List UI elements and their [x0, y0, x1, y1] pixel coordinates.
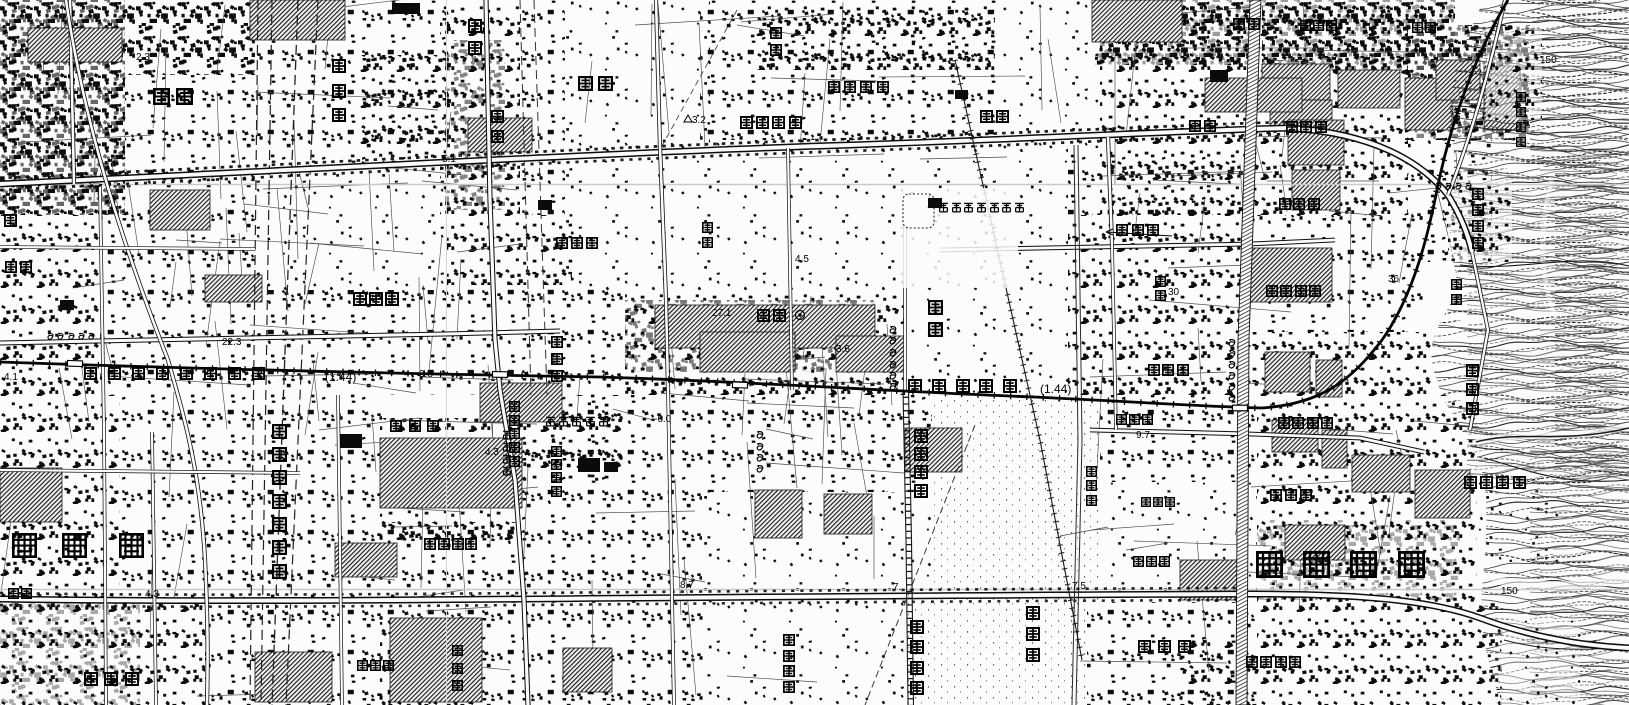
svg-text:4.3: 4.3	[145, 589, 159, 600]
svg-text:9.7: 9.7	[1136, 430, 1150, 441]
svg-text:(1.44): (1.44)	[1040, 382, 1071, 396]
svg-text:27.1: 27.1	[712, 308, 732, 319]
svg-text:36: 36	[1388, 274, 1400, 285]
svg-text:7.: 7.	[893, 582, 901, 593]
svg-text:150: 150	[1540, 55, 1557, 66]
svg-text:4.3: 4.3	[485, 447, 499, 458]
svg-text:4.5: 4.5	[795, 254, 809, 265]
svg-text:-6.0: -6.0	[654, 414, 672, 425]
svg-text:5.1: 5.1	[442, 154, 456, 165]
svg-text:3.8: 3.8	[419, 369, 433, 380]
svg-text:2.3: 2.3	[136, 52, 150, 63]
svg-text:30: 30	[1168, 287, 1180, 298]
svg-text:150: 150	[1501, 586, 1518, 597]
svg-text:8.7: 8.7	[680, 580, 694, 591]
svg-text:3.6: 3.6	[836, 344, 850, 355]
svg-text:4.1: 4.1	[4, 372, 18, 383]
svg-text:22.3: 22.3	[222, 337, 242, 348]
svg-text:3.2: 3.2	[692, 115, 706, 126]
svg-text:7.5: 7.5	[1072, 581, 1086, 592]
svg-text:(1.44): (1.44)	[325, 370, 356, 384]
